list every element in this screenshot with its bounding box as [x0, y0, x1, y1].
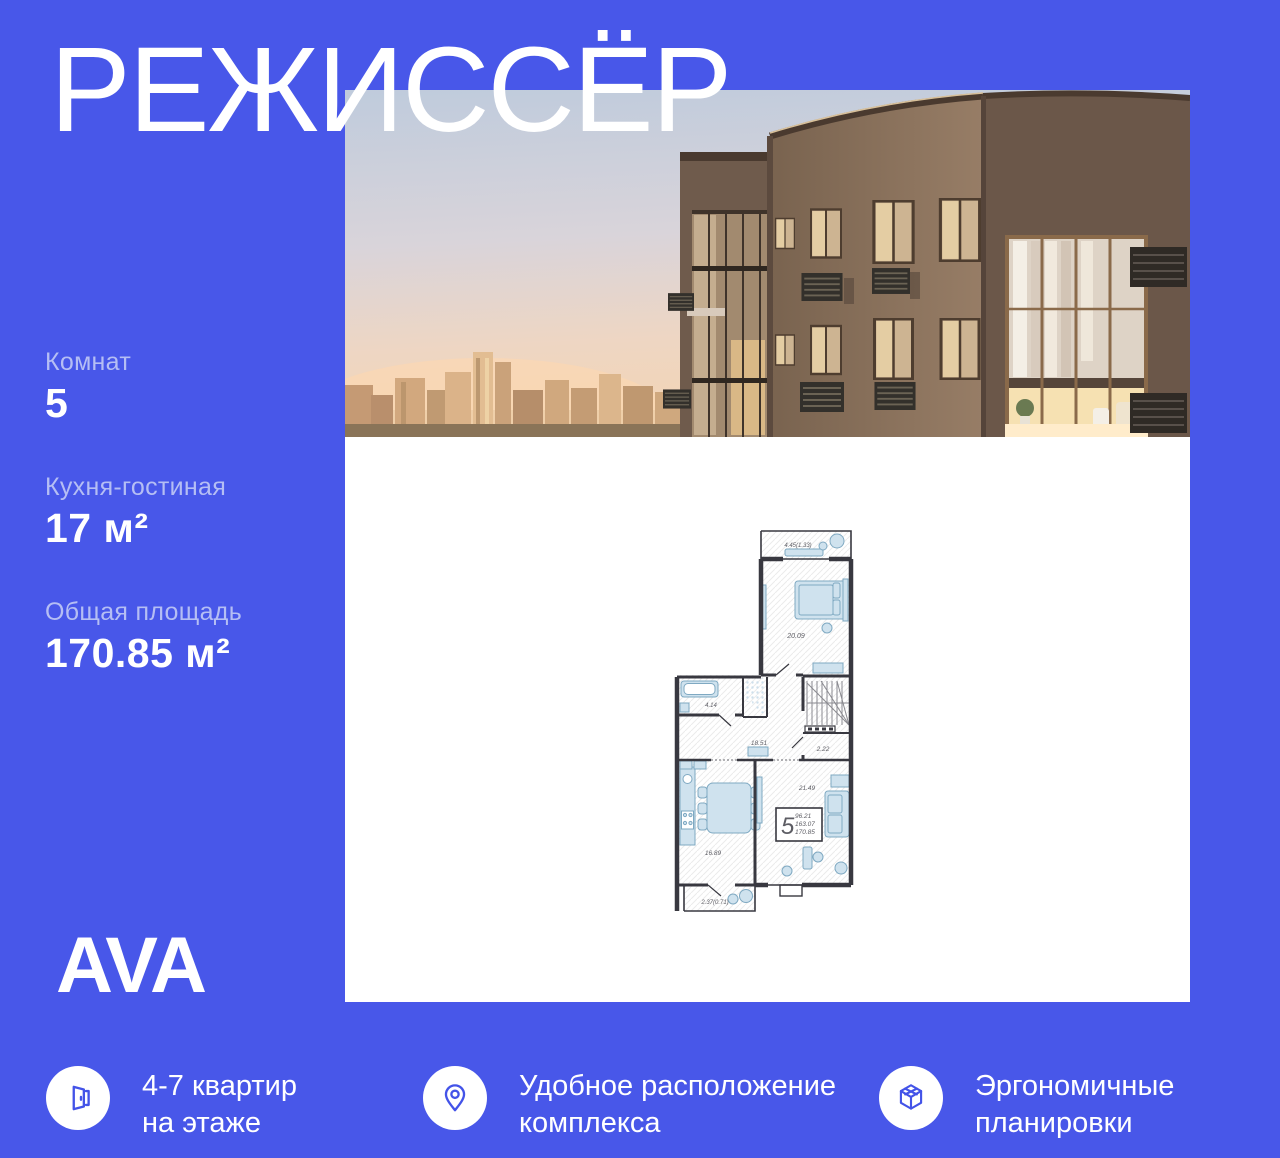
- feature-line: 4-7 квартир: [142, 1068, 297, 1105]
- center-facade: [767, 93, 983, 437]
- feature-text: 4-7 квартир на этаже: [142, 1066, 297, 1142]
- stat-kitchen-living-value: 17 м²: [45, 508, 226, 549]
- developer-logo: AVA: [56, 925, 205, 1004]
- stat-kitchen-living-label: Кухня-гостиная: [45, 475, 226, 500]
- pin-icon: [438, 1081, 472, 1115]
- room-label-hall: 18.51: [751, 740, 768, 747]
- feature-circle: [423, 1066, 487, 1130]
- stat-total-area-value: 170.85 м²: [45, 633, 242, 674]
- stat-rooms-value: 5: [45, 383, 131, 424]
- feature-line: Удобное расположение: [519, 1068, 836, 1105]
- door-icon: [61, 1081, 95, 1115]
- room-label-balcony-bottom: 2.37(0.71): [700, 900, 728, 906]
- feature-line: на этаже: [142, 1105, 297, 1142]
- feature-line: комплекса: [519, 1105, 836, 1142]
- stairs-railing: [805, 726, 835, 732]
- feature-text: Удобное расположение комплекса: [519, 1066, 836, 1142]
- apartment-info-box: 5 96.21 163.07 170.85: [776, 808, 822, 841]
- room-label-living: 21.49: [798, 785, 816, 792]
- feature-text: Эргономичные планировки: [975, 1066, 1174, 1142]
- feature-circle: [46, 1066, 110, 1130]
- stat-total-area: Общая площадь 170.85 м²: [45, 600, 242, 674]
- floor-plan-drawing: 4.45(1.33) 20.09 4.14 18.51 2.22 21.49 1…: [655, 515, 875, 915]
- listing-card: РЕЖИССЁР Комнат 5 Кухня-гостиная 17 м² О…: [0, 0, 1280, 1158]
- feature-line: планировки: [975, 1105, 1174, 1142]
- feature-location: Удобное расположение комплекса: [423, 1066, 836, 1142]
- right-tower: [981, 93, 1190, 437]
- room-label-kitchen: 16.89: [705, 850, 722, 857]
- page-title: РЕЖИССЁР: [50, 29, 730, 150]
- stat-rooms-label: Комнат: [45, 350, 131, 375]
- room-label-bedroom: 20.09: [786, 633, 805, 640]
- apartment-area-2: 163.07: [795, 821, 815, 828]
- apartment-area-3: 170.85: [795, 829, 815, 836]
- stat-total-area-label: Общая площадь: [45, 600, 242, 625]
- stat-kitchen-living: Кухня-гостиная 17 м²: [45, 475, 226, 549]
- apartment-area-1: 96.21: [795, 813, 812, 820]
- floor-plan-panel: 4.45(1.33) 20.09 4.14 18.51 2.22 21.49 1…: [345, 437, 1190, 1002]
- room-label-balcony-top: 4.45(1.33): [784, 543, 811, 549]
- feature-ergonomic-layouts: Эргономичные планировки: [879, 1066, 1174, 1142]
- apartment-number: 5: [781, 813, 795, 840]
- floor-plan: 4.45(1.33) 20.09 4.14 18.51 2.22 21.49 1…: [655, 515, 875, 915]
- cube-icon: [894, 1081, 928, 1115]
- feature-circle: [879, 1066, 943, 1130]
- room-label-storage: 2.22: [816, 746, 830, 753]
- stat-rooms: Комнат 5: [45, 350, 131, 424]
- room-label-bathroom: 4.14: [705, 703, 717, 709]
- feature-line: Эргономичные: [975, 1068, 1174, 1105]
- feature-apartments-per-floor: 4-7 квартир на этаже: [46, 1066, 297, 1142]
